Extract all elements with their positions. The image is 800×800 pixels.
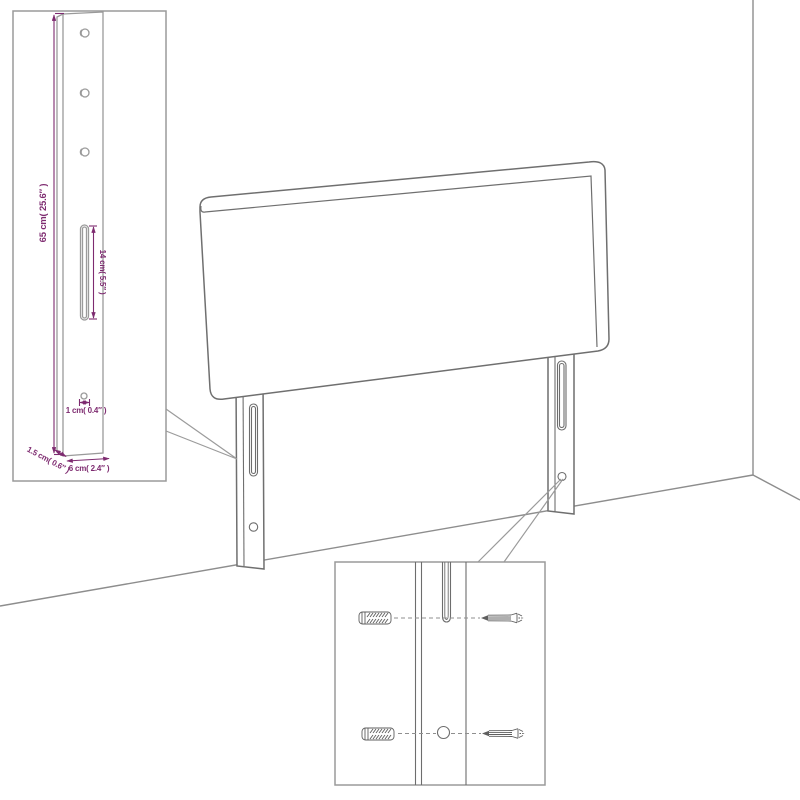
height-dimension-label: 65 cm( 25.6″ ) (38, 184, 49, 243)
width-dimension-label: 6 cm( 2.4″ ) (69, 464, 110, 473)
detail-inset-frame (335, 562, 545, 785)
callout-to-left-leg (166, 409, 237, 459)
floor-line-right (753, 475, 800, 500)
callout-lines (166, 409, 563, 562)
hole-dimension-label: 1 cm( 0.4″ ) (66, 406, 107, 415)
assembly-diagram-page: 65 cm( 25.6″ ) 14 cm( 5.5″ ) 1 cm( 0.4″ … (0, 0, 800, 800)
assembly-diagram: 65 cm( 25.6″ ) 14 cm( 5.5″ ) 1 cm( 0.4″ … (0, 0, 800, 800)
mounting-detail-inset (335, 562, 545, 785)
leg-dimension-inset: 65 cm( 25.6″ ) 14 cm( 5.5″ ) 1 cm( 0.4″ … (13, 11, 166, 481)
slot-dimension-label: 14 cm( 5.5″ ) (98, 250, 107, 295)
headboard-leg-left (236, 378, 264, 569)
